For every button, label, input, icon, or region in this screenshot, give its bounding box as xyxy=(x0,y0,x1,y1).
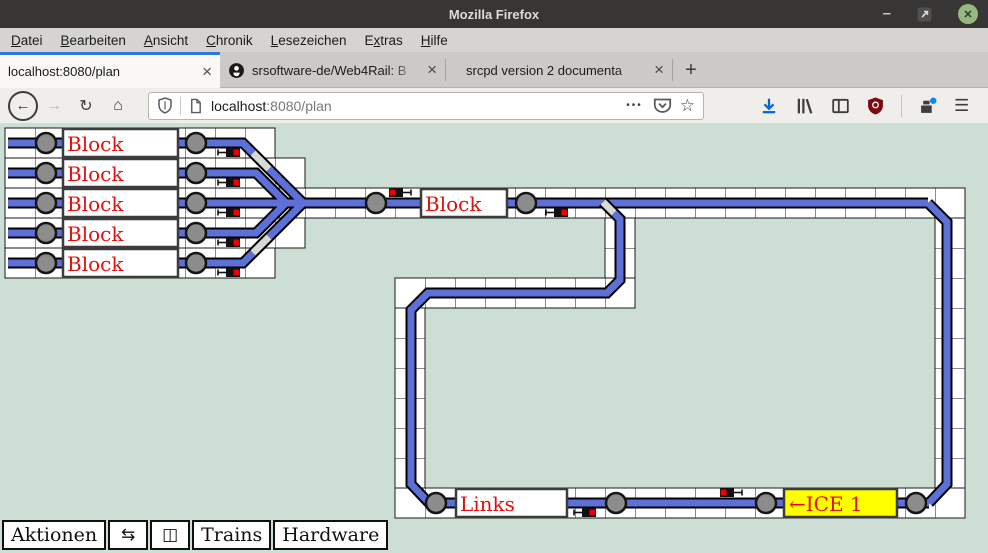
block-label[interactable]: Block xyxy=(63,129,178,157)
contact-icon[interactable] xyxy=(186,223,206,243)
svg-text:Block: Block xyxy=(67,132,124,156)
menu-ansicht[interactable]: Ansicht xyxy=(135,33,197,48)
contact-icon[interactable] xyxy=(36,163,56,183)
block-label[interactable]: Block xyxy=(421,189,507,217)
block-label[interactable]: Block xyxy=(63,249,178,277)
download-icon[interactable] xyxy=(760,97,778,115)
window-title: Mozilla Firefox xyxy=(449,7,539,22)
url-text: localhost:8080/plan xyxy=(211,98,332,114)
svg-text:Block: Block xyxy=(67,192,124,216)
menu-datei[interactable]: Datei xyxy=(2,33,52,48)
contact-icon[interactable] xyxy=(606,493,626,513)
forward-button[interactable]: → xyxy=(38,92,70,120)
svg-text:Block: Block xyxy=(425,192,482,216)
contact-icon[interactable] xyxy=(36,133,56,153)
tab-localhost-plan[interactable]: localhost:8080/plan × xyxy=(0,52,220,88)
contact-icon[interactable] xyxy=(186,193,206,213)
menu-chronik[interactable]: Chronik xyxy=(197,33,262,48)
block-occupied-ice1[interactable]: ←ICE 1 xyxy=(784,489,897,517)
contact-icon[interactable] xyxy=(756,493,776,513)
page-icon[interactable] xyxy=(188,98,203,114)
page-actions-icon[interactable]: ••• xyxy=(626,100,643,111)
whats-new-icon[interactable] xyxy=(919,97,937,115)
contact-icon[interactable] xyxy=(366,193,386,213)
menu-hilfe[interactable]: Hilfe xyxy=(412,33,457,48)
swap-arrows-button[interactable]: ⇆ xyxy=(108,520,148,550)
plan-canvas: Block Block Block Block Block Block xyxy=(0,123,988,553)
url-separator xyxy=(180,97,181,115)
contact-icon[interactable] xyxy=(186,133,206,153)
tab-close-icon[interactable]: × xyxy=(654,60,664,80)
close-button[interactable]: ✕ xyxy=(958,4,978,24)
home-button[interactable]: ⌂ xyxy=(102,92,134,120)
svg-text:Block: Block xyxy=(67,222,124,246)
ublock-shield-icon[interactable] xyxy=(867,97,884,115)
track-plan: Block Block Block Block Block Block xyxy=(0,123,988,553)
menu-lesezeichen[interactable]: Lesezeichen xyxy=(262,33,356,48)
new-tab-button[interactable]: + xyxy=(673,52,709,88)
reload-button[interactable]: ↻ xyxy=(70,92,102,120)
maximize-button[interactable] xyxy=(917,7,932,22)
contact-icon[interactable] xyxy=(516,193,536,213)
trains-button[interactable]: Trains xyxy=(192,520,271,550)
pocket-icon[interactable] xyxy=(653,97,672,115)
shield-icon[interactable] xyxy=(157,97,173,114)
back-button[interactable]: ← xyxy=(8,91,38,121)
github-icon xyxy=(228,62,245,79)
menu-bar: Datei Bearbeiten Ansicht Chronik Lesezei… xyxy=(0,28,988,52)
split-square-button[interactable]: ◫ xyxy=(150,520,190,550)
contact-icon[interactable] xyxy=(186,163,206,183)
plan-toolbar: Aktionen ⇆ ◫ Trains Hardware xyxy=(2,520,388,550)
svg-text:Block: Block xyxy=(67,162,124,186)
block-label[interactable]: Block xyxy=(63,189,178,217)
hardware-button[interactable]: Hardware xyxy=(273,520,388,550)
tab-srcpd-doc[interactable]: srcpd version 2 documenta × xyxy=(446,52,672,88)
maximize-icon xyxy=(917,7,932,22)
tab-github-web4rail[interactable]: srsoftware-de/Web4Rail: B × xyxy=(220,52,445,88)
menu-extras[interactable]: Extras xyxy=(356,33,412,48)
minimize-button[interactable]: – xyxy=(883,9,891,19)
block-label[interactable]: Block xyxy=(63,159,178,187)
block-label[interactable]: Block xyxy=(63,219,178,247)
url-bar[interactable]: localhost:8080/plan ••• ☆ xyxy=(148,92,704,120)
bookmark-star-icon[interactable]: ☆ xyxy=(680,96,695,116)
tab-bar: localhost:8080/plan × srsoftware-de/Web4… xyxy=(0,52,988,88)
svg-text:←ICE 1: ←ICE 1 xyxy=(789,492,863,516)
library-icon[interactable] xyxy=(795,97,814,115)
tab-close-icon[interactable]: × xyxy=(427,60,437,80)
sidebar-icon[interactable] xyxy=(831,97,850,115)
contact-icon[interactable] xyxy=(36,223,56,243)
toolbar-separator xyxy=(901,95,902,117)
block-label-links[interactable]: Links xyxy=(456,489,567,517)
contact-icon[interactable] xyxy=(426,493,446,513)
hamburger-menu-icon[interactable]: ☰ xyxy=(954,96,969,116)
window-titlebar: Mozilla Firefox – ✕ xyxy=(0,0,988,28)
aktionen-button[interactable]: Aktionen xyxy=(2,520,106,550)
contact-icon[interactable] xyxy=(906,493,926,513)
contact-icon[interactable] xyxy=(36,193,56,213)
contact-icon[interactable] xyxy=(36,253,56,273)
contact-icon[interactable] xyxy=(186,253,206,273)
svg-text:Links: Links xyxy=(460,492,515,516)
tab-close-icon[interactable]: × xyxy=(202,62,212,82)
navigation-toolbar: ← → ↻ ⌂ localhost:8080/plan ••• ☆ xyxy=(0,88,988,123)
svg-text:Block: Block xyxy=(67,252,124,276)
menu-bearbeiten[interactable]: Bearbeiten xyxy=(52,33,135,48)
